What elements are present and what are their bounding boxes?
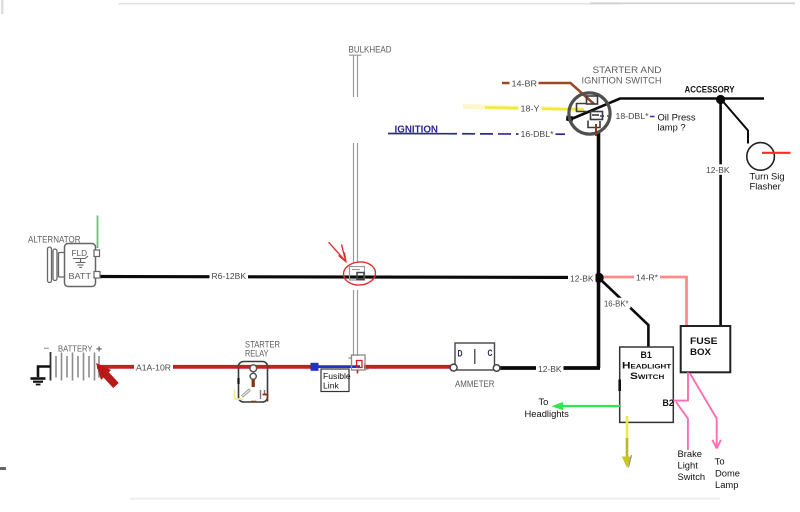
svg-text:IGNITION: IGNITION bbox=[395, 125, 439, 136]
svg-text:lamp ?: lamp ? bbox=[658, 122, 686, 133]
svg-text:B2: B2 bbox=[663, 398, 674, 408]
svg-text:FUSE: FUSE bbox=[690, 336, 718, 347]
svg-text:BULKHEAD: BULKHEAD bbox=[349, 44, 392, 54]
svg-text:ACCESSORY: ACCESSORY bbox=[685, 85, 735, 95]
svg-text:−: − bbox=[44, 344, 50, 355]
svg-text:Fusible: Fusible bbox=[323, 371, 351, 381]
svg-text:FLD: FLD bbox=[72, 249, 88, 258]
svg-text:Light: Light bbox=[678, 460, 699, 471]
svg-text:BATTERY: BATTERY bbox=[58, 344, 93, 354]
svg-text:18-Y: 18-Y bbox=[521, 104, 540, 114]
svg-text:Lamp: Lamp bbox=[715, 479, 738, 490]
svg-text:12-BK: 12-BK bbox=[538, 364, 562, 374]
svg-text:C: C bbox=[488, 348, 493, 358]
svg-text:STARTER AND: STARTER AND bbox=[593, 65, 663, 75]
svg-text:16-DBL*: 16-DBL* bbox=[521, 129, 555, 139]
svg-text:Flasher: Flasher bbox=[750, 181, 781, 192]
svg-text:Headlights: Headlights bbox=[525, 408, 570, 419]
svg-text:12-BK: 12-BK bbox=[570, 274, 594, 284]
svg-text:Link: Link bbox=[323, 381, 339, 391]
svg-text:14-R*: 14-R* bbox=[636, 273, 659, 283]
svg-text:Brake: Brake bbox=[678, 448, 703, 459]
svg-text:To: To bbox=[539, 396, 549, 407]
svg-text:Dome: Dome bbox=[715, 468, 740, 479]
svg-text:IGNITION SWITCH: IGNITION SWITCH bbox=[582, 76, 662, 86]
svg-text:Switch: Switch bbox=[630, 371, 664, 381]
svg-text:ALTERNATOR: ALTERNATOR bbox=[28, 235, 81, 245]
svg-text:B1: B1 bbox=[641, 350, 652, 360]
svg-text:12-BK: 12-BK bbox=[706, 165, 730, 175]
svg-text:+: + bbox=[96, 344, 102, 356]
svg-text:R6-12BK: R6-12BK bbox=[212, 271, 247, 281]
svg-text:BOX: BOX bbox=[690, 347, 712, 358]
svg-text:D: D bbox=[458, 349, 463, 359]
svg-text:18-DBL*: 18-DBL* bbox=[616, 111, 650, 121]
svg-text:Headlight: Headlight bbox=[622, 361, 672, 371]
svg-text:RELAY: RELAY bbox=[245, 348, 269, 358]
svg-text:To: To bbox=[714, 455, 725, 467]
svg-text:16-BK*: 16-BK* bbox=[604, 299, 629, 309]
svg-text:Switch: Switch bbox=[678, 471, 706, 482]
svg-text:14-BR: 14-BR bbox=[512, 79, 538, 89]
svg-text:BATT: BATT bbox=[69, 271, 92, 281]
svg-text:AMMETER: AMMETER bbox=[455, 379, 495, 389]
svg-text:A1A-10R: A1A-10R bbox=[136, 363, 171, 373]
